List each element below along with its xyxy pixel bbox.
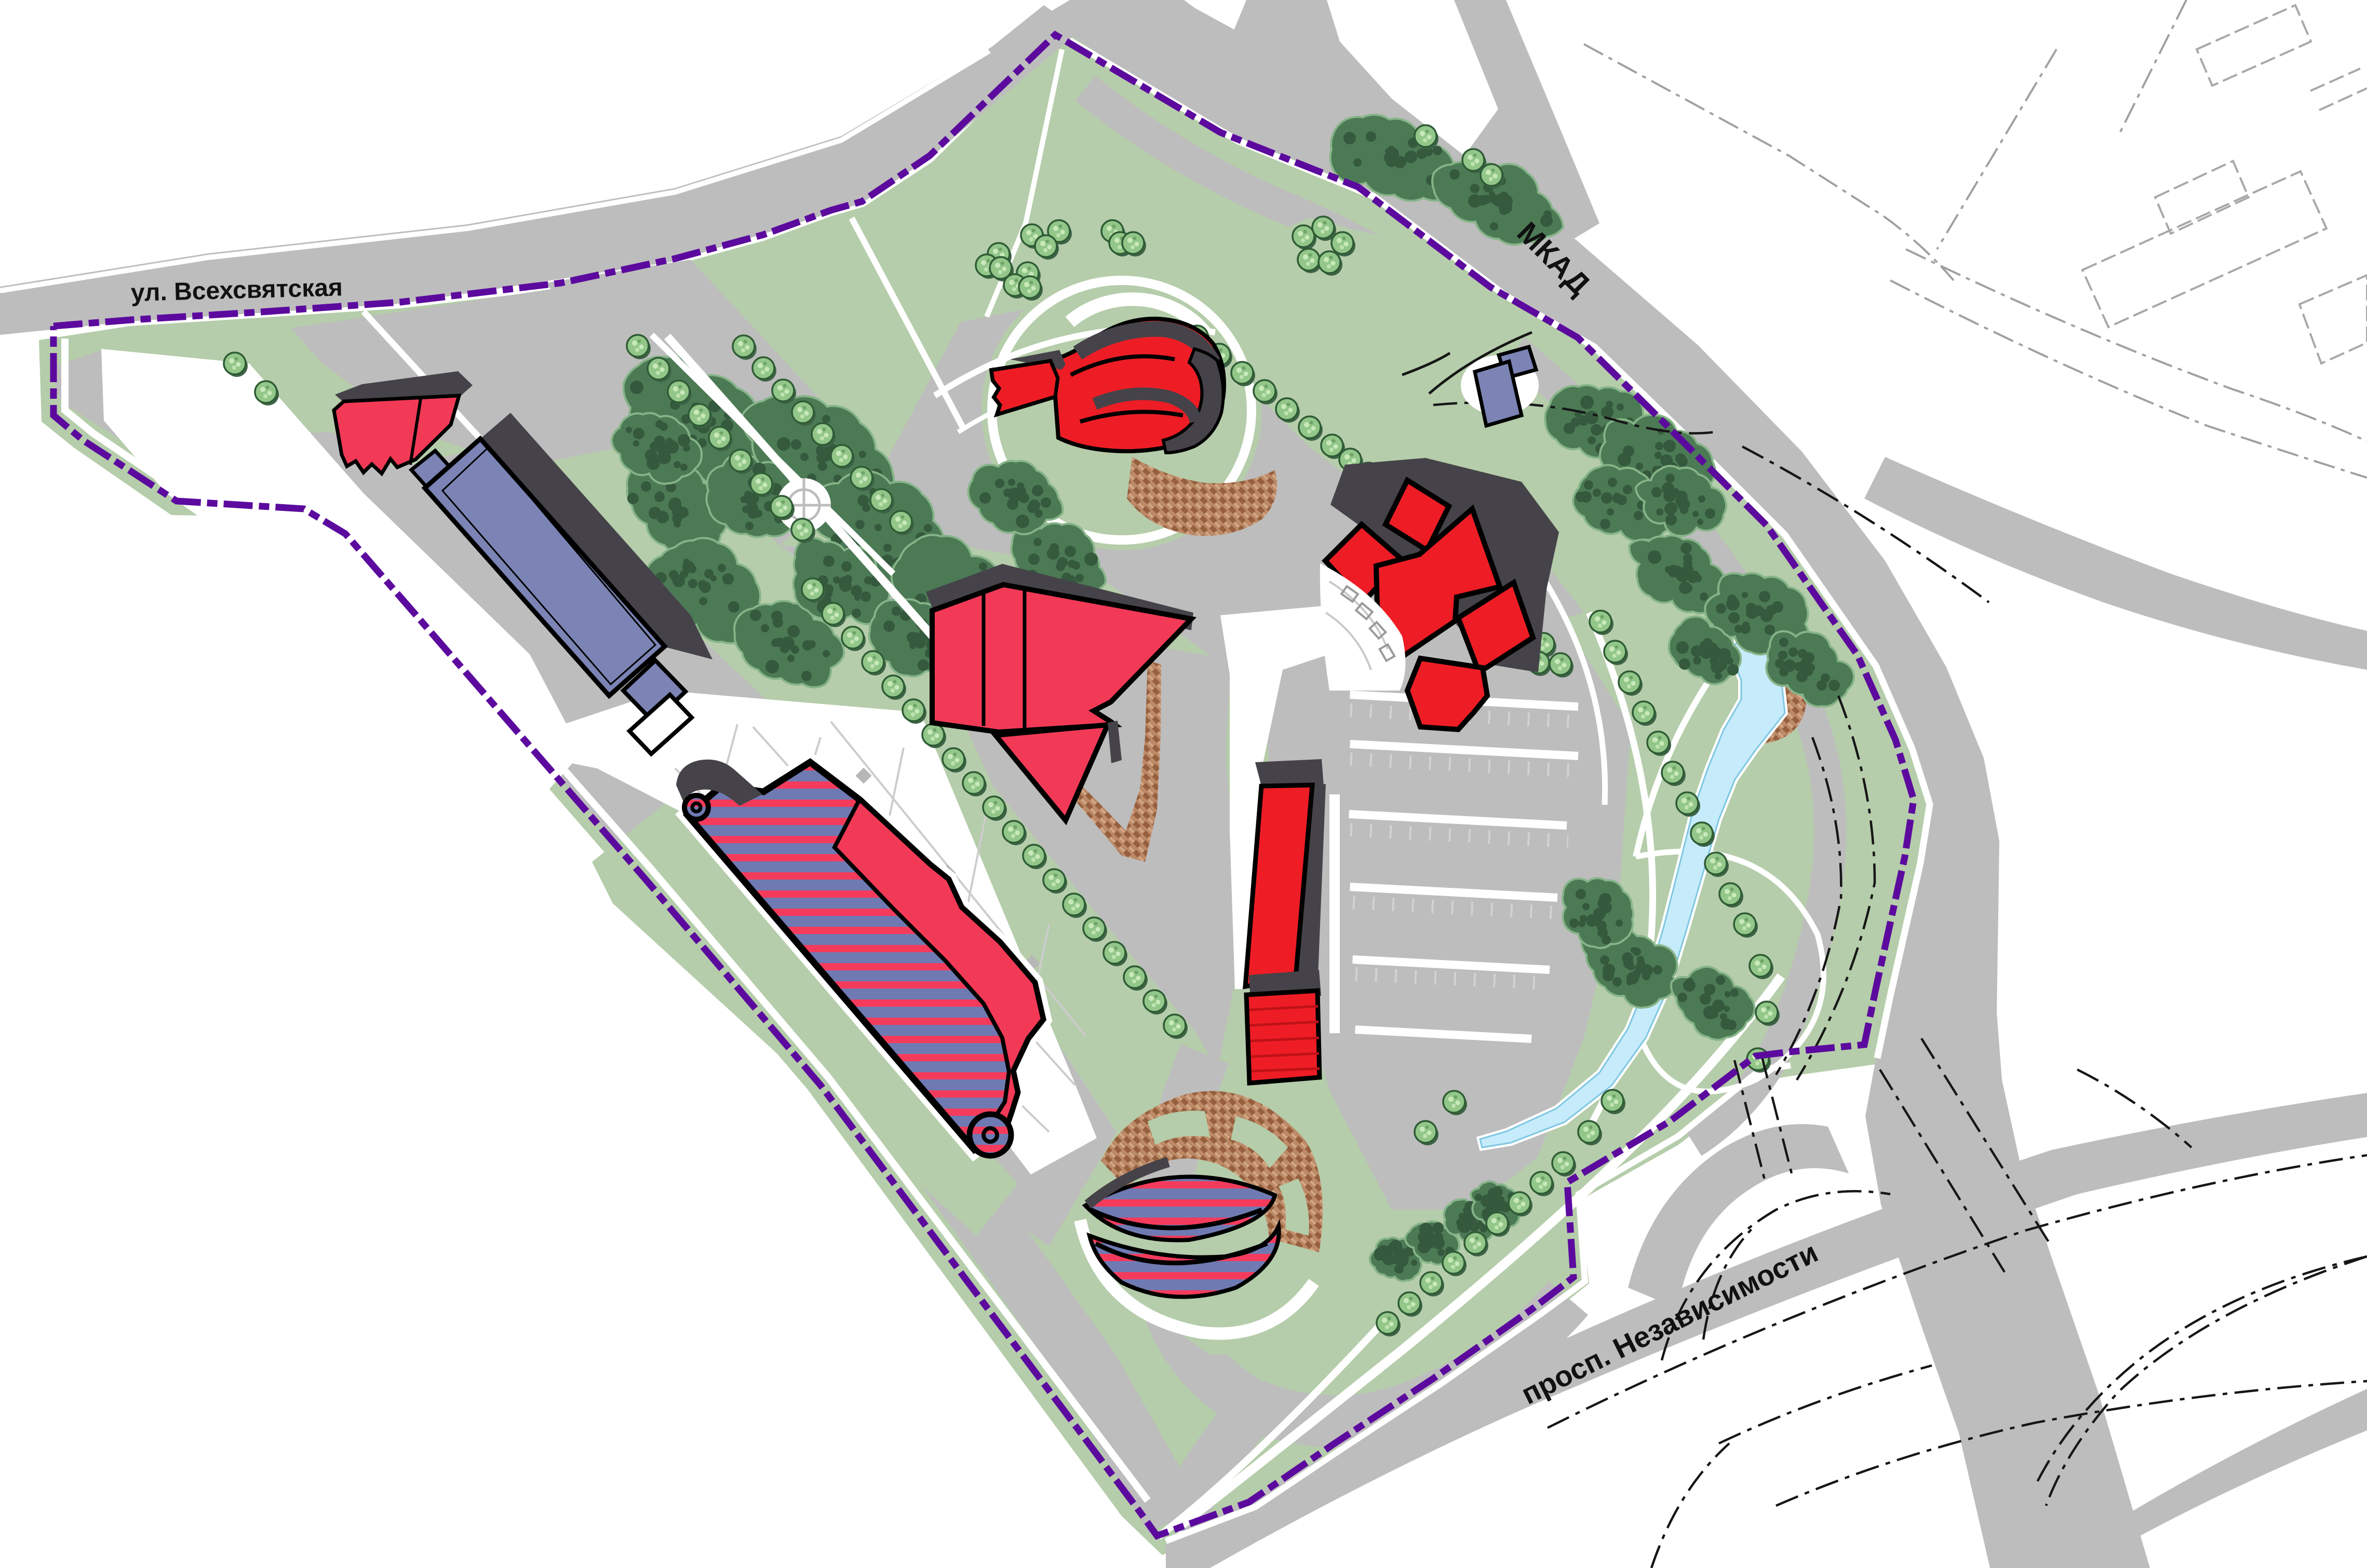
- svg-text:ул. Всехсвятская: ул. Всехсвятская: [130, 274, 343, 307]
